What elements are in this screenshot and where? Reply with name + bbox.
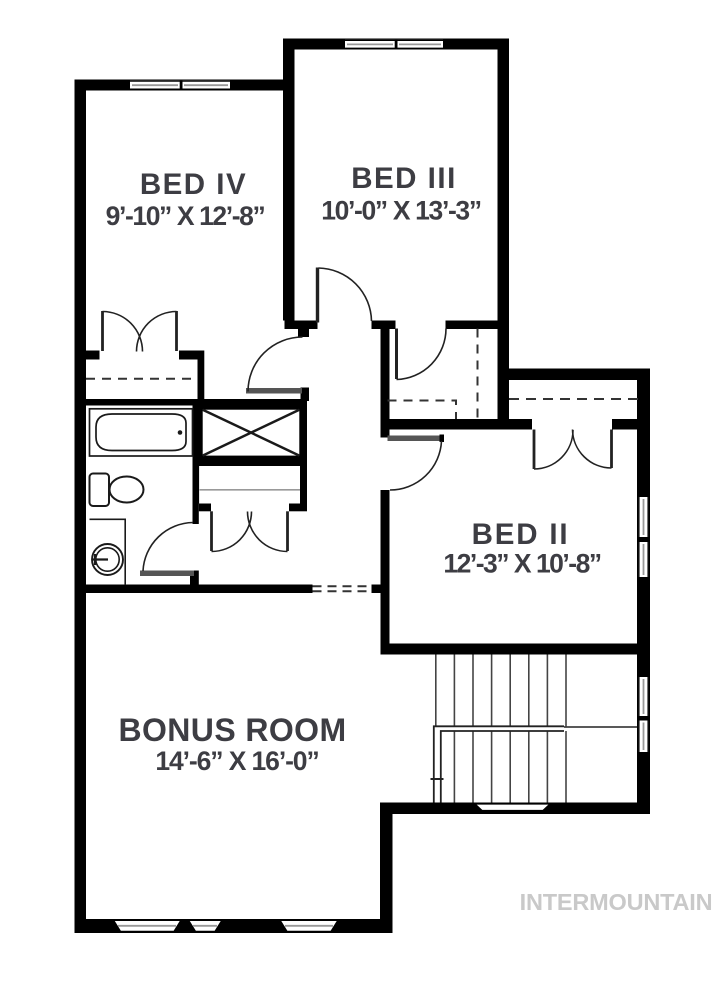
svg-text:12’-3” X 10’-8”: 12’-3” X 10’-8” [443, 549, 600, 579]
svg-text:10’-0” X 13’-3”: 10’-0” X 13’-3” [321, 196, 481, 226]
svg-text:9’-10” X 12’-8”: 9’-10” X 12’-8” [106, 201, 265, 231]
svg-text:BONUS ROOM: BONUS ROOM [119, 712, 347, 748]
svg-text:INTERMOUNTAIN: INTERMOUNTAIN [520, 889, 713, 915]
svg-text:14’-6” X 16’-0”: 14’-6” X 16’-0” [155, 746, 318, 776]
svg-text:BED III: BED III [351, 162, 457, 195]
svg-text:BED IV: BED IV [140, 168, 247, 201]
svg-text:BED II: BED II [472, 518, 570, 551]
